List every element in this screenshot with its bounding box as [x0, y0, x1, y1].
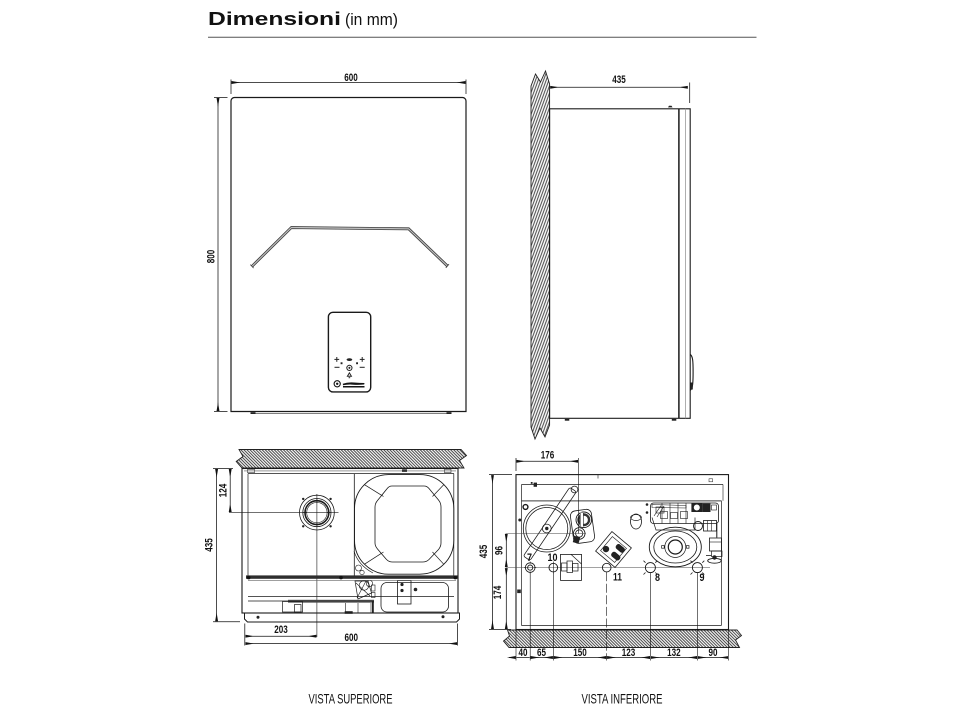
svg-text:VISTA INFERIORE: VISTA INFERIORE: [582, 691, 663, 707]
svg-text:435: 435: [478, 545, 490, 559]
svg-text:132: 132: [667, 647, 681, 659]
svg-text:9: 9: [700, 572, 705, 584]
svg-text:600: 600: [344, 72, 358, 84]
svg-text:124: 124: [218, 483, 230, 497]
svg-text:123: 123: [622, 647, 636, 659]
svg-text:(in mm): (in mm): [345, 10, 398, 29]
svg-text:96: 96: [494, 546, 506, 555]
svg-text:11: 11: [613, 572, 622, 584]
svg-text:203: 203: [274, 624, 288, 636]
svg-text:40: 40: [519, 647, 528, 659]
svg-text:176: 176: [541, 449, 555, 461]
svg-text:VISTA SUPERIORE: VISTA SUPERIORE: [309, 691, 393, 707]
svg-text:90: 90: [709, 647, 718, 659]
svg-text:65: 65: [537, 647, 546, 659]
svg-text:10: 10: [548, 552, 558, 564]
svg-text:435: 435: [204, 538, 216, 552]
svg-text:Dimensioni: Dimensioni: [208, 8, 341, 29]
svg-text:435: 435: [612, 74, 626, 86]
svg-text:8: 8: [655, 572, 660, 584]
svg-text:150: 150: [573, 647, 587, 659]
svg-text:7: 7: [527, 552, 532, 564]
svg-text:800: 800: [206, 250, 218, 264]
svg-text:600: 600: [344, 632, 358, 644]
svg-text:174: 174: [492, 585, 504, 599]
